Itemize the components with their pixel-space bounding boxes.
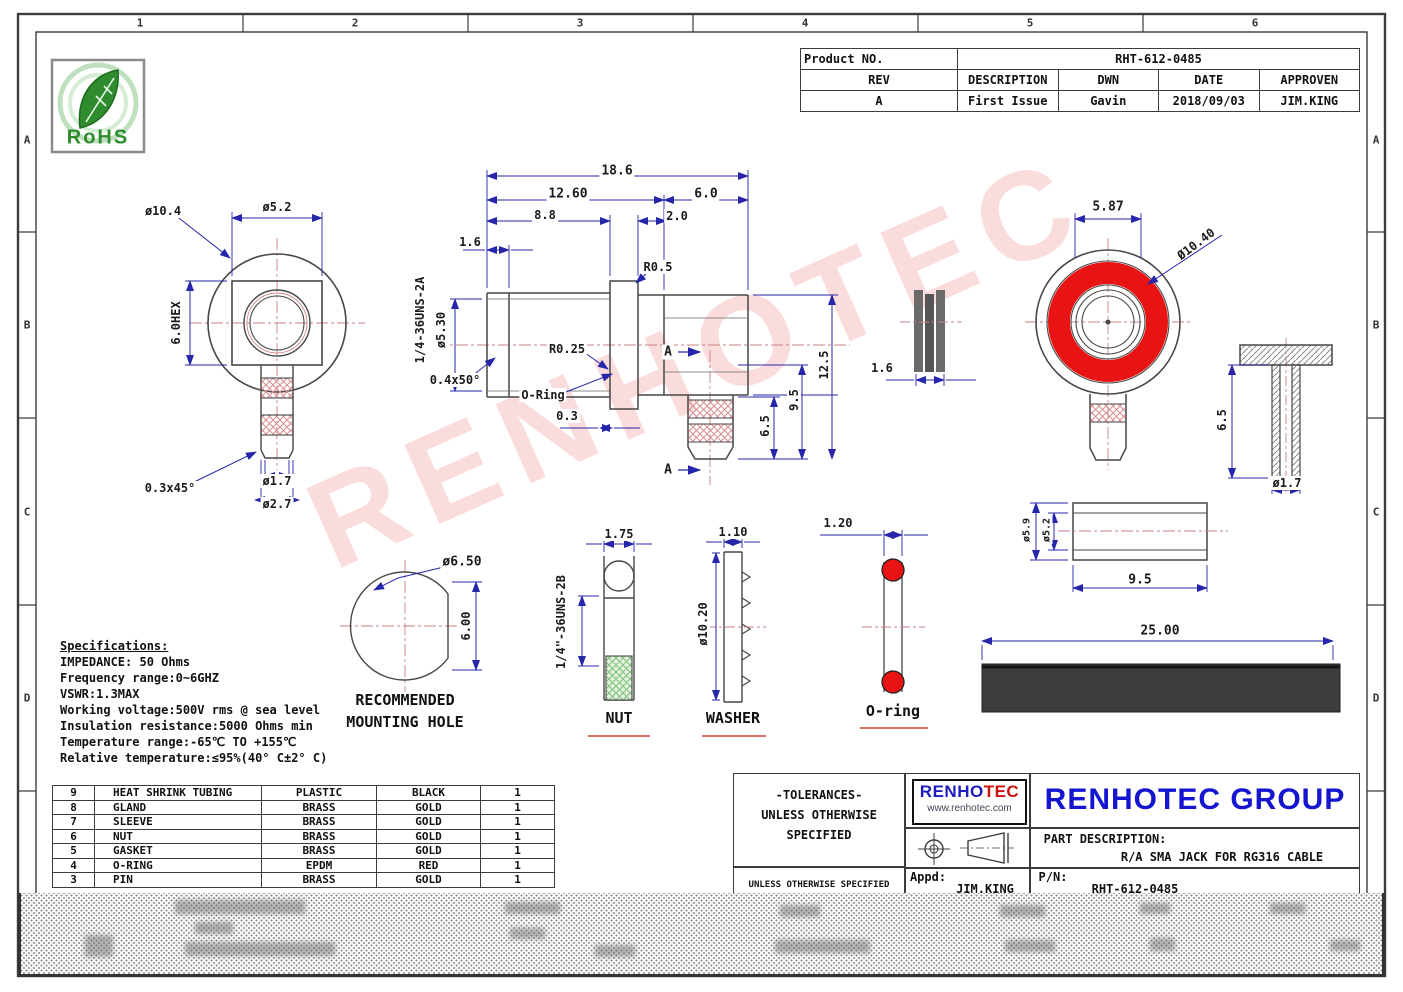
approven-header: APPROVEN bbox=[1259, 70, 1360, 91]
spec-line: IMPEDANCE: 50 Ohms bbox=[60, 654, 327, 670]
dim-5-87: 5.87 bbox=[1090, 200, 1125, 215]
dim-6-5: 6.5 bbox=[758, 413, 772, 439]
part-description-value: R/A SMA JACK FOR RG316 CABLE bbox=[1121, 850, 1323, 864]
tolerances-line-2: UNLESS OTHERWISE bbox=[761, 808, 877, 822]
part-description-label: PART DESCRIPTION: bbox=[1044, 832, 1167, 846]
dim-1-20: 1.20 bbox=[822, 516, 855, 530]
bom-finish: GOLD bbox=[377, 873, 481, 888]
rev-value: A bbox=[801, 91, 958, 112]
dim-phi10-20: ø10.20 bbox=[696, 600, 710, 647]
dim-1-10: 1.10 bbox=[717, 525, 750, 539]
product-no-value: RHT-612-0485 bbox=[958, 49, 1360, 70]
approven-value: JIM.KING bbox=[1259, 91, 1360, 112]
frame-right-edge bbox=[1382, 893, 1385, 977]
spec-line: Working voltage:500V rms @ sea level bbox=[60, 702, 327, 718]
date-header: DATE bbox=[1159, 70, 1260, 91]
bom-item-no: 5 bbox=[53, 844, 95, 859]
dim-phi1-7: ø1.7 bbox=[261, 474, 294, 488]
dim-8-8: 8.8 bbox=[532, 208, 558, 222]
dim-thread-2a: 1/4-36UNS-2A bbox=[413, 275, 427, 366]
dither-smudge bbox=[195, 922, 233, 934]
bom-material: PLASTIC bbox=[262, 786, 377, 801]
table-row: 9 HEAT SHRINK TUBING PLASTIC BLACK 1 bbox=[53, 786, 555, 801]
dither-smudge bbox=[1150, 938, 1175, 951]
bom-qty: 1 bbox=[481, 786, 555, 801]
table-row: 4 O-RING EPDM RED 1 bbox=[53, 858, 555, 873]
dither-smudge bbox=[185, 942, 335, 956]
projection-cell bbox=[905, 828, 1030, 868]
dither-smudge bbox=[595, 945, 635, 957]
dim-25-00: 25.00 bbox=[1138, 624, 1181, 639]
dim-18-6: 18.6 bbox=[599, 164, 634, 179]
bom-finish: GOLD bbox=[377, 829, 481, 844]
dim-1-75: 1.75 bbox=[603, 527, 636, 541]
dim-1-6: 1.6 bbox=[457, 235, 483, 249]
table-row: 6 NUT BRASS GOLD 1 bbox=[53, 829, 555, 844]
bom-part-name: SLEEVE bbox=[95, 815, 262, 830]
dim-tube-phi5-2: ø5.2 bbox=[1042, 516, 1053, 544]
nut-caption: NUT bbox=[605, 709, 632, 727]
dim-thread-2b: 1/4"-36UNS-2B bbox=[554, 573, 568, 671]
company-name: RENHOTEC GROUP bbox=[1045, 783, 1346, 817]
dim-phi10-4: ø10.4 bbox=[143, 204, 183, 218]
bom-item-no: 8 bbox=[53, 800, 95, 815]
dither-smudge bbox=[175, 900, 305, 914]
dither-smudge bbox=[775, 940, 870, 953]
bom-item-no: 4 bbox=[53, 858, 95, 873]
dim-r0-5: R0.5 bbox=[642, 260, 675, 274]
tolerances-line-3: SPECIFIED bbox=[786, 828, 851, 842]
bom-finish: GOLD bbox=[377, 844, 481, 859]
bom-part-name: O-RING bbox=[95, 858, 262, 873]
bom-part-name: GASKET bbox=[95, 844, 262, 859]
specs-title: Specifications: bbox=[60, 638, 327, 654]
dim-phi2-7: ø2.7 bbox=[261, 497, 294, 511]
bom-finish: GOLD bbox=[377, 815, 481, 830]
product-no-label: Product NO. bbox=[801, 49, 958, 70]
bom-finish: GOLD bbox=[377, 800, 481, 815]
bom-finish: BLACK bbox=[377, 786, 481, 801]
section-a-bottom: A bbox=[662, 463, 674, 478]
spec-line: Relative temperature:≤95%(40° C±2° C) bbox=[60, 750, 327, 766]
bom-material: BRASS bbox=[262, 815, 377, 830]
side-section-view bbox=[435, 170, 850, 485]
bom-qty: 1 bbox=[481, 829, 555, 844]
dim-phi5-30: ø5.30 bbox=[434, 310, 448, 350]
bom-qty: 1 bbox=[481, 815, 555, 830]
dither-smudge bbox=[1140, 903, 1170, 914]
table-row: 3 PIN BRASS GOLD 1 bbox=[53, 873, 555, 888]
dither-smudge bbox=[510, 928, 545, 939]
spec-line: Insulation resistance:5000 Ohms min bbox=[60, 718, 327, 734]
dim-12-5: 12.5 bbox=[817, 349, 831, 382]
dither-smudge bbox=[1330, 940, 1360, 951]
bom-item-no: 9 bbox=[53, 786, 95, 801]
nut-view bbox=[578, 538, 652, 736]
description-header: DESCRIPTION bbox=[958, 70, 1059, 91]
dither-smudge bbox=[1000, 905, 1045, 917]
pin-section-view bbox=[1228, 338, 1332, 494]
dim-phi6-50: ø6.50 bbox=[440, 555, 483, 570]
bom-item-no: 6 bbox=[53, 829, 95, 844]
date-value: 2018/09/03 bbox=[1159, 91, 1260, 112]
washer-view bbox=[702, 536, 766, 736]
dim-0-3: 0.3 bbox=[554, 409, 580, 423]
table-row: 5 GASKET BRASS GOLD 1 bbox=[53, 844, 555, 859]
dither-smudge bbox=[1270, 903, 1305, 914]
bom-finish: RED bbox=[377, 858, 481, 873]
dim-6-0: 6.0 bbox=[692, 187, 719, 202]
frame-left-edge bbox=[18, 893, 21, 977]
bom-part-name: HEAT SHRINK TUBING bbox=[95, 786, 262, 801]
bom-table: 9 HEAT SHRINK TUBING PLASTIC BLACK 1 8 G… bbox=[52, 785, 555, 888]
rohs-label: RoHS bbox=[67, 127, 129, 150]
bom-part-name: GLAND bbox=[95, 800, 262, 815]
bom-qty: 1 bbox=[481, 844, 555, 859]
dim-12-60: 12.60 bbox=[546, 187, 589, 202]
dim-chamfer-0-3x45: 0.3x45° bbox=[143, 481, 198, 495]
dim-tube-9-5: 9.5 bbox=[1126, 573, 1153, 588]
dim-9-5: 9.5 bbox=[787, 387, 801, 413]
frame-bottom-edge bbox=[18, 974, 1385, 977]
table-row: 8 GLAND BRASS GOLD 1 bbox=[53, 800, 555, 815]
bom-part-name: NUT bbox=[95, 829, 262, 844]
spec-line: Temperature range:-65℃ TO +155℃ bbox=[60, 734, 327, 750]
bom-material: EPDM bbox=[262, 858, 377, 873]
heat-shrink-view bbox=[982, 641, 1340, 712]
logo-text-blue: RENHO bbox=[920, 782, 984, 801]
dither-smudge bbox=[1005, 940, 1055, 952]
renhotec-logo: RENHOTEC www.renhotec.com bbox=[912, 779, 1027, 825]
dither-smudge bbox=[780, 905, 820, 917]
bom-material: BRASS bbox=[262, 873, 377, 888]
dwn-value: Gavin bbox=[1058, 91, 1159, 112]
rev-header: REV bbox=[801, 70, 958, 91]
dither-smudge bbox=[505, 902, 560, 914]
bom-material: BRASS bbox=[262, 800, 377, 815]
dim-2-0: 2.0 bbox=[664, 209, 690, 223]
dim-6-0hex: 6.0HEX bbox=[169, 299, 183, 346]
logo-website: www.renhotec.com bbox=[914, 803, 1025, 815]
dim-tube-phi5-9: ø5.9 bbox=[1022, 516, 1033, 544]
oring-caption: O-ring bbox=[866, 702, 920, 720]
tolerances-line-1: -TOLERANCES- bbox=[776, 788, 863, 802]
appd-label: Appd: bbox=[910, 870, 946, 884]
bom-material: BRASS bbox=[262, 829, 377, 844]
description-value: First Issue bbox=[958, 91, 1059, 112]
dim-0-4x50: 0.4x50° bbox=[428, 373, 483, 387]
label-o-ring: O-Ring bbox=[519, 388, 566, 402]
tolerances-note: UNLESS OTHERWISE SPECIFIED bbox=[749, 880, 890, 890]
spec-line: VSWR:1.3MAX bbox=[60, 686, 327, 702]
dim-phi5-2: ø5.2 bbox=[261, 200, 294, 214]
bom-material: BRASS bbox=[262, 844, 377, 859]
bom-item-no: 7 bbox=[53, 815, 95, 830]
dim-pin-6-5: 6.5 bbox=[1215, 407, 1229, 433]
washer-caption: WASHER bbox=[706, 709, 760, 727]
engineering-drawing-sheet: RENHOTEC 1 2 3 4 5 6 A B C D A B C D RoH… bbox=[0, 0, 1403, 992]
revision-table: Product NO. RHT-612-0485 REV DESCRIPTION… bbox=[800, 48, 1360, 112]
front-view bbox=[175, 212, 365, 505]
bom-qty: 1 bbox=[481, 800, 555, 815]
dim-r0-25: R0.25 bbox=[547, 342, 587, 356]
bom-qty: 1 bbox=[481, 873, 555, 888]
specifications-block: Specifications: IMPEDANCE: 50 Ohms Frequ… bbox=[60, 638, 327, 766]
section-a-top: A bbox=[662, 345, 674, 360]
oring-view bbox=[820, 530, 928, 728]
dither-smudge bbox=[85, 935, 113, 957]
bom-item-no: 3 bbox=[53, 873, 95, 888]
bom-part-name: PIN bbox=[95, 873, 262, 888]
logo-text-red: TEC bbox=[984, 782, 1020, 801]
mounting-hole-caption-1: RECOMMENDED bbox=[355, 691, 454, 709]
pn-label: P/N: bbox=[1039, 870, 1068, 884]
table-row: 7 SLEEVE BRASS GOLD 1 bbox=[53, 815, 555, 830]
spec-line: Frequency range:0~6GHZ bbox=[60, 670, 327, 686]
gasket-spring-view bbox=[886, 290, 976, 386]
dim-6-00: 6.00 bbox=[459, 610, 473, 643]
dwn-header: DWN bbox=[1058, 70, 1159, 91]
bom-qty: 1 bbox=[481, 858, 555, 873]
dim-pin-phi1-7: ø1.7 bbox=[1271, 476, 1304, 490]
mounting-hole-caption-2: MOUNTING HOLE bbox=[346, 713, 463, 731]
dim-gasket-1-6: 1.6 bbox=[869, 361, 895, 375]
